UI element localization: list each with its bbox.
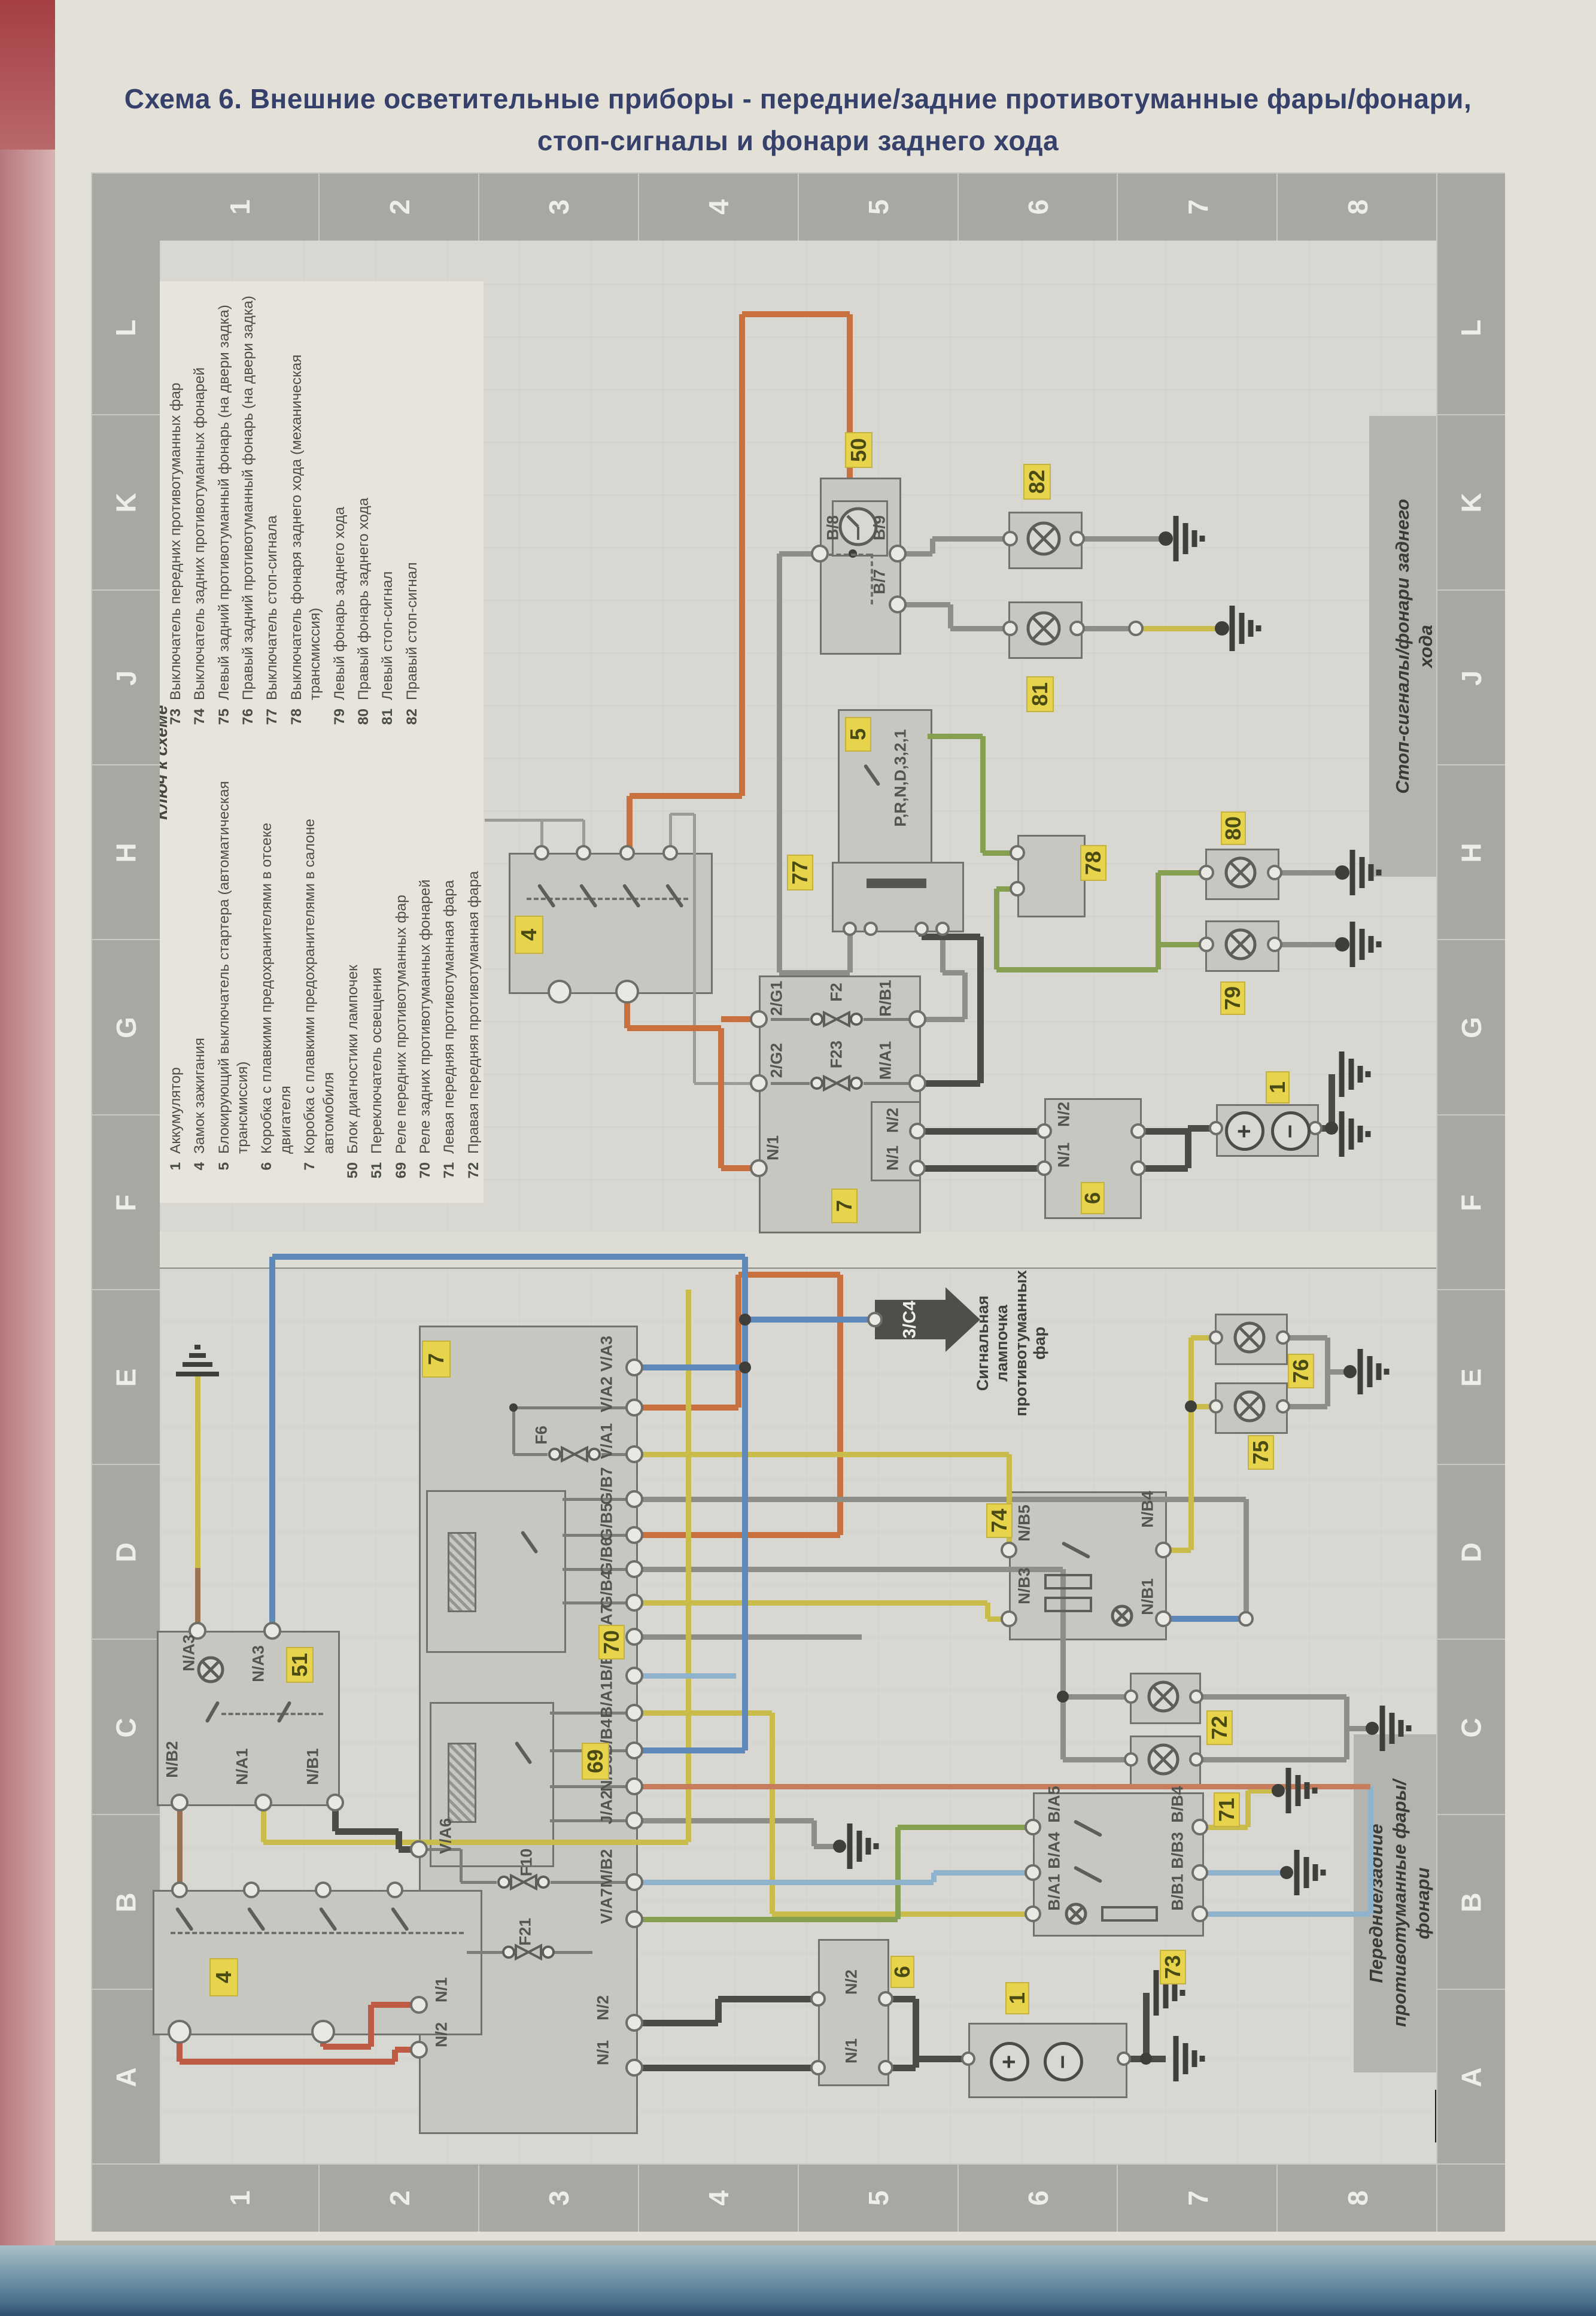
pin-label: B/B1 [1169,1874,1187,1911]
grid-cell-number: 1 [159,2163,320,2232]
ground-icon [1339,1049,1373,1099]
ignition-switch-4-lower [153,1890,482,2035]
component-tag: 81 [1026,676,1054,712]
legend: Ключ к схеме 1Аккумулятор4Замок зажигани… [151,281,484,1203]
connector [1155,1610,1172,1627]
pin-label: V/A6 [437,1818,455,1854]
battery-terminal-plus: + [990,2042,1029,2081]
connector [1025,1819,1041,1835]
connector [914,922,929,936]
pin-label: N/2 [594,1995,613,2020]
wire [634,1880,934,1885]
wire [811,1820,817,1846]
wire [627,796,633,853]
pin-label: R/B1 [877,980,895,1017]
grid-cell-letter: C [91,1639,160,1814]
ground-icon [1229,603,1264,654]
connector [878,1991,893,2007]
grid-cell-number: 2 [318,2163,479,2232]
wire [928,734,983,739]
wire [634,2065,818,2071]
wire [735,1275,741,1408]
wire [1185,1128,1191,1168]
pin-label: N/1 [843,2038,861,2063]
legend-item: 50Блок диагностики лампочек [343,755,362,1199]
junction-dot [1185,1400,1197,1412]
wire [779,970,850,975]
connector [625,1358,643,1376]
connector [625,2059,643,2077]
page-title-line2: стоп-сигналы и фонари заднего хода [0,124,1596,157]
wire [948,604,953,628]
wire [634,2020,718,2026]
legend-item: 1Аккумулятор [166,755,185,1199]
grid-cell-number: 1 [159,172,320,241]
lamp-80-icon [1223,855,1258,890]
connector [1002,621,1018,636]
legend-column-1: 1Аккумулятор4Замок зажигания5Блокирующий… [166,755,488,1199]
component-tag: 51 [286,1647,314,1683]
pin-label: N/2 [433,2022,451,2047]
pin-label: N/2 [1055,1102,1074,1127]
connector [750,1159,768,1177]
connector-arrow-3c4: 3/C4 [875,1300,946,1339]
wire [694,1082,759,1085]
wire [1077,626,1136,631]
connector [315,1882,332,1898]
wire [950,626,1010,631]
pin-label: B/8 [824,515,843,540]
ground-icon [1294,1847,1329,1898]
grid-cell-number: 3 [478,2163,639,2232]
pin-label: N/B1 [1139,1578,1157,1615]
wire [1163,1616,1246,1622]
connector [625,1560,643,1578]
lamp-76-icon [1232,1320,1267,1355]
wire [996,967,1158,972]
wire [1077,536,1166,542]
page-title-line1: Схема 6. Внешние осветительные приборы -… [0,83,1596,115]
lamp-72-icon [1145,1679,1181,1715]
wire [634,1818,814,1823]
connector [1036,1123,1052,1139]
junction-dot [1335,865,1349,880]
pin-label: G/B7 [598,1467,616,1505]
junction-dot [509,1403,518,1412]
component-tag: 77 [787,855,813,890]
junction-dot [1159,531,1173,546]
connector [810,1991,826,2007]
connector [750,1074,768,1092]
legend-item: 81Левый стоп-сигнал [378,285,397,746]
legend-column-2: 73Выключатель передних противотуманных ф… [166,285,427,746]
pin-label: B/B3 [1169,1832,1187,1869]
stop-switch-bar [867,879,926,888]
connector [1128,621,1144,636]
pin-label: N/B3 [1016,1567,1034,1604]
component-tag: 70 [598,1625,625,1660]
connector [410,1996,428,2014]
connector [662,845,678,861]
wire [551,1881,634,1884]
connector [1189,1689,1203,1704]
wire [745,1317,875,1323]
wire [895,1827,901,1919]
page-bottom-seam [55,2241,1596,2245]
switch-74-lamp-icon [1109,1603,1135,1629]
wire [180,2059,395,2065]
legend-item: 77Выключатель стоп-сигнала [263,285,281,746]
pin-label: F10 [518,1849,536,1877]
diagram-gap-band [159,1232,1436,1268]
wire [634,1917,898,1922]
connector [1036,1160,1052,1176]
connector [1209,1121,1223,1135]
wire [1063,1694,1131,1700]
lamp-81-icon [1025,609,1063,648]
connector [625,1704,643,1722]
pin-label: N/1 [1055,1142,1074,1168]
component-tag: 1 [1005,1982,1029,2014]
component-tag: 74 [986,1503,1013,1538]
connector [171,1882,188,1898]
wire [550,1819,634,1822]
grid-cell-letter: F [91,1114,160,1290]
grid-cell-number: 6 [957,172,1118,241]
wire [771,1018,810,1021]
wire [994,889,999,969]
junction-dot [1280,1866,1293,1879]
grid-corner [1436,2163,1505,2232]
grid-cell-letter: G [1436,939,1505,1115]
component-tag: 73 [1160,1950,1186,1984]
resistor [1101,1906,1158,1922]
connector [625,1526,643,1544]
connector [243,1882,260,1898]
connector [615,980,639,1004]
connector [864,922,878,936]
component-tag: 78 [1080,845,1106,881]
book-edge-left [0,0,55,2249]
wire [718,1028,724,1168]
connector [1124,1752,1138,1767]
switch-73-lamp-icon [1063,1901,1089,1927]
wire [1136,626,1222,631]
wire [634,1673,736,1679]
pin-label: N/2 [843,1969,861,1995]
connector [750,1010,768,1028]
connector [1130,1123,1146,1139]
legend-item: 5Блокирующий выключатель стартера (автом… [215,755,253,1199]
connector [625,1594,643,1612]
wire [467,1951,504,1954]
component-tag: 1 [1266,1071,1290,1104]
connector [1238,1611,1254,1627]
legend-item: 71Левая передняя противотуманная фара [440,755,458,1199]
wire [917,1128,1044,1135]
wire [1245,1791,1251,1827]
dashed-line [221,1713,323,1715]
connector [810,2060,826,2075]
junction-dot [739,1361,751,1373]
junction-dot [1366,1722,1379,1735]
ground-icon [1379,1703,1414,1753]
wire [552,1951,592,1954]
connector [625,1812,643,1829]
connector [889,545,907,563]
connector [625,1910,643,1928]
wire [634,1747,745,1753]
grid-cell-number: 7 [1117,172,1278,241]
grid-cell-letter: G [91,939,160,1115]
pin-label: F21 [516,1918,535,1946]
legend-item: 69Реле передних противотуманных фар [392,755,411,1199]
connector [168,2020,191,2044]
wire [323,2044,371,2050]
wire [634,1784,1370,1789]
connector [1209,1330,1223,1345]
grid-cell-number: 2 [318,172,479,241]
resistor [1044,1597,1092,1612]
pin-label: N/2 [884,1108,902,1133]
fuse-icon [548,1444,601,1464]
pin-label: 2/G2 [768,1043,786,1078]
wire [1063,1757,1131,1762]
pin-label: N/A1 [233,1748,252,1785]
wire [634,1364,745,1370]
grid-cell-number: 5 [798,2163,959,2232]
pin-label: B/9 [871,515,889,540]
pin-label: G/B4 [598,1570,616,1608]
connector [867,1312,883,1327]
ground-icon [847,1821,881,1871]
connector [1191,1905,1208,1922]
connector [1069,621,1085,636]
grid-cell-letter: L [1436,239,1505,415]
connector [576,845,591,861]
component-tag: 7 [831,1189,858,1223]
connector [410,2041,428,2059]
wire [718,1996,818,2002]
pin-label: B/7 [871,569,889,594]
grid-cell-letter: C [1436,1639,1505,1814]
component-tag: 6 [890,1956,914,1988]
pin-label: V/A7 [598,1888,616,1924]
pin-label: B/A1 [598,1681,616,1718]
wire [898,1825,1033,1830]
connector [1209,1399,1223,1414]
wire [1276,870,1342,876]
wire [627,1025,721,1031]
wire [1200,1870,1287,1876]
component-tag: 75 [1248,1435,1274,1470]
scanned-manual-page: Схема 6. Внешние осветительные приборы -… [0,0,1596,2316]
pin-label: V/A1 [598,1423,616,1459]
connector [1010,845,1025,861]
wire [742,1257,748,1750]
junction-dot [1215,621,1229,636]
pin-label: N/1 [764,1135,783,1160]
wire [977,937,984,1083]
grid-cell-letter: B [1436,1814,1505,1990]
connector [625,1628,643,1646]
component-tag: 69 [582,1743,609,1780]
connector [1267,937,1282,952]
connector [1117,2051,1131,2066]
grid-corner [91,172,160,241]
wire [272,1254,745,1260]
grid-cell-letter: J [1436,589,1505,765]
desk-strip-bottom [0,2245,1596,2316]
grid-cell-number: 8 [1276,172,1437,241]
wire [460,1849,463,1882]
ground-icon [1349,847,1384,898]
connector [1155,1542,1172,1558]
component-tag: 79 [1220,981,1245,1015]
grid-cell-number: 3 [478,172,639,241]
pin-label: B/A4 [1045,1832,1064,1869]
pin-label: F6 [533,1426,551,1445]
wire [1276,942,1342,947]
ground-icon [1339,1109,1373,1159]
connector [1267,865,1282,880]
pin-label: B/B4 [1169,1786,1187,1823]
wire [263,1840,688,1845]
wire [634,1532,840,1538]
wire [943,970,965,975]
wire [916,2056,968,2062]
component-tag: 50 [845,432,873,468]
connector [909,1160,926,1177]
legend-item: 75Левый задний противотуманный фонарь (н… [215,285,233,746]
wire [932,536,1010,542]
pin-label: V/A2 [598,1376,616,1412]
dashed-line [171,1932,464,1934]
ground-icon [174,1341,221,1376]
connector [1124,1689,1138,1704]
wire [512,1408,515,1454]
grid-cell-letter: J [91,589,160,765]
wire [177,1803,183,1890]
connector [1191,1819,1208,1835]
wire [1196,1694,1346,1700]
connector [625,2014,643,2032]
grid-cell-letter: K [91,414,160,590]
wire [738,1272,840,1278]
legend-item: 70Реле задних противотуманных фонарей [416,755,434,1199]
wire [1196,1757,1346,1762]
pin-label: B/A1 [1045,1874,1064,1911]
component-tag: 80 [1221,811,1246,845]
pin-label: 2/G1 [768,981,786,1016]
grid-cell-letter: D [91,1464,160,1640]
component-tag: 76 [1288,1354,1314,1388]
wire [634,1567,1063,1572]
wire [1200,1911,1370,1917]
wire [634,1710,772,1716]
wire [634,1634,862,1640]
pin-label: N/1 [594,2040,613,2065]
grid-cell-letter: H [1436,764,1505,940]
component-tag: 71 [1214,1792,1240,1827]
legend-item: 7Коробка с плавкими предохранителями в с… [300,755,338,1199]
connector [1002,531,1018,546]
pin-label: N/B2 [163,1741,182,1778]
junction-dot [833,1840,846,1853]
connector [1025,1864,1041,1881]
connector [625,1667,643,1685]
wire [670,813,694,816]
grid-cell-number: 4 [638,2163,799,2232]
grid-corner [91,2163,160,2232]
pin-label: N/A3 [250,1645,268,1682]
wire [777,554,782,972]
wire [368,2005,374,2047]
wire [269,1257,275,1631]
wire [1188,1338,1194,1550]
legend-item: 74Выключатель задних противотуманных фон… [190,285,209,746]
wire [980,736,986,853]
junction-dot [1272,1784,1285,1797]
grid-cell-letter: A [91,1989,160,2165]
wire [693,814,696,1083]
component-tag: 7 [422,1341,451,1378]
component-tag: 82 [1023,464,1051,500]
fuse-icon [810,1009,864,1029]
battery-terminal-minus: − [1044,2042,1083,2081]
junction-dot [1057,1691,1069,1703]
pin-label: N/B4 [1139,1491,1157,1528]
grid-cell-letter: F [1436,1114,1505,1290]
ground-icon [1173,2034,1208,2084]
wire [772,1911,1033,1917]
wire [739,314,745,796]
component-tag: 5 [845,717,871,752]
component-tag: 4 [209,1958,238,1996]
pin-label: M/B2 [598,1849,616,1888]
legend-item: 73Выключатель передних противотуманных ф… [166,285,185,746]
connector-arrow-head [946,1287,980,1352]
lamp-79-icon [1223,926,1258,962]
pin-label: G/B5 [598,1503,616,1540]
wire [917,1165,1044,1172]
legend-item: 76Правый задний противотуманный фонарь (… [239,285,257,746]
connector [548,980,571,1004]
wire [513,1453,548,1456]
wire [962,972,968,1019]
lamp-82-icon [1025,519,1063,558]
ground-icon [1357,1347,1392,1397]
wire [550,1712,634,1715]
junction-dot [1343,1365,1357,1378]
ground-icon [1349,919,1384,969]
grid-cell-letter: E [91,1289,160,1465]
connector [1130,1160,1146,1176]
wire [742,311,850,317]
wire [715,1999,722,2023]
junction-dot [1140,2053,1152,2065]
legend-item: 4Замок зажигания [190,755,209,1199]
grid-cell-letter: L [91,239,160,415]
switch-51-lamp-icon [195,1654,226,1685]
pin-label: N/B1 [304,1748,323,1785]
pin-label: F23 [828,1041,846,1069]
wire [1156,873,1161,969]
legend-item: 51Переключатель освещения [367,755,386,1199]
grid-cell-letter: K [1436,414,1505,590]
lamp-75-icon [1232,1388,1267,1424]
grid-cell-number: 8 [1276,2163,1437,2232]
